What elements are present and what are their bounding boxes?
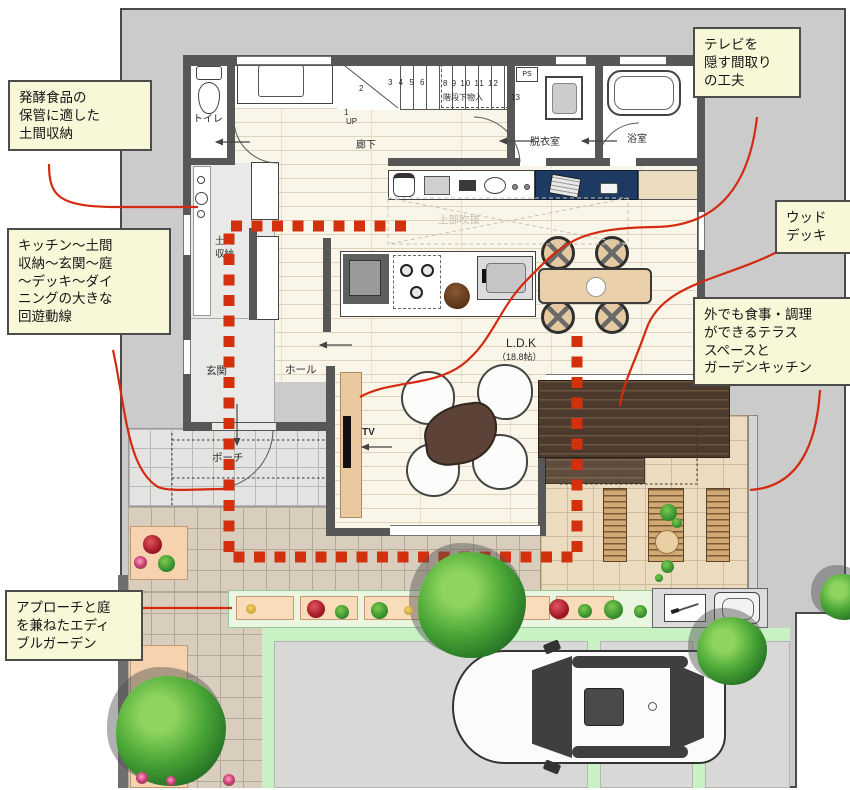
cutting-board bbox=[664, 594, 706, 622]
callout-tv-line: 隠す間取り bbox=[704, 54, 790, 72]
pink-flower bbox=[223, 774, 235, 786]
green-shrub bbox=[335, 605, 349, 619]
callout-garden: アプローチと庭 を兼ねたエディ ブルガーデン bbox=[5, 590, 143, 661]
small-appliance-icon bbox=[459, 180, 476, 191]
deck-step bbox=[545, 458, 645, 484]
callout-terrace-line: スペースと bbox=[704, 342, 844, 360]
terrace-bench bbox=[603, 488, 627, 562]
wall-corridor-south bbox=[388, 158, 705, 166]
label-doma-1: 土間 bbox=[215, 233, 234, 247]
label-hall: ホール bbox=[285, 362, 317, 377]
car bbox=[452, 646, 726, 768]
dining-table bbox=[538, 268, 652, 304]
wood-deck bbox=[538, 380, 730, 458]
callout-tv-line: テレビを bbox=[704, 36, 790, 54]
label-corridor: 廊下 bbox=[356, 136, 376, 151]
callout-garden-line: アプローチと庭 bbox=[16, 599, 132, 617]
label-stair-2: 2 bbox=[359, 84, 363, 93]
faucet-dot bbox=[512, 184, 518, 190]
callout-storage-line: 土間収納 bbox=[19, 125, 141, 143]
porch-tiles bbox=[128, 428, 330, 507]
label-toilet: トイレ bbox=[193, 110, 223, 125]
wall-hall-east bbox=[323, 238, 331, 332]
burner-icon bbox=[421, 264, 434, 277]
potted-herb bbox=[661, 560, 674, 573]
callout-circulation-line: 〜デッキ〜ダイ bbox=[18, 273, 160, 291]
preserve-jar bbox=[197, 176, 205, 184]
range-inner bbox=[349, 260, 381, 296]
grass-strip bbox=[262, 641, 274, 788]
wall-bath-west bbox=[595, 60, 603, 165]
red-shrub bbox=[549, 599, 569, 619]
callout-storage-line: 発酵食品の bbox=[19, 89, 141, 107]
island-cooktop bbox=[393, 255, 441, 309]
garden-tree-large bbox=[418, 552, 526, 658]
cabinet-door bbox=[258, 65, 304, 97]
red-shrub bbox=[143, 535, 162, 554]
terrace-bench bbox=[706, 488, 730, 562]
bathtub-inner bbox=[614, 76, 674, 110]
site-notch-white bbox=[795, 612, 846, 788]
washing-machine bbox=[545, 76, 583, 120]
callout-deck-line: デッキ bbox=[786, 227, 844, 245]
planter-box bbox=[236, 596, 294, 620]
burner-icon bbox=[410, 286, 423, 299]
burner-icon bbox=[400, 264, 413, 277]
pink-flower bbox=[136, 772, 148, 784]
window bbox=[620, 56, 666, 65]
green-shrub bbox=[158, 555, 175, 572]
label-dressing: 脱衣室 bbox=[530, 133, 560, 148]
label-doma-2: 収納 bbox=[215, 246, 234, 260]
planter-box-left bbox=[130, 526, 188, 580]
red-shrub bbox=[307, 600, 325, 618]
toaster-icon bbox=[424, 176, 450, 195]
remote-icon bbox=[600, 183, 618, 194]
preserve-jar bbox=[197, 210, 205, 218]
callout-terrace: 外でも食事・調理 ができるテラス スペースと ガーデンキッチン bbox=[693, 297, 850, 386]
window bbox=[556, 56, 586, 65]
door-gap bbox=[610, 158, 636, 166]
window bbox=[237, 56, 331, 65]
island-sink bbox=[477, 256, 533, 300]
flower bbox=[246, 604, 256, 614]
wall-toilet-bottom bbox=[191, 158, 235, 165]
terrace-plate bbox=[655, 530, 679, 554]
car-rear-window bbox=[670, 662, 704, 752]
car-emblem bbox=[648, 702, 657, 711]
counter-sink-oval bbox=[484, 177, 506, 194]
label-understairs: 階段下物入 bbox=[443, 92, 483, 103]
entrance-door-gap bbox=[212, 422, 276, 431]
label-stair-13: 13 bbox=[511, 93, 520, 102]
callout-terrace-line: ガーデンキッチン bbox=[704, 359, 844, 377]
callout-deck: ウッド デッキ bbox=[775, 200, 850, 254]
label-tv: TV bbox=[362, 427, 375, 438]
green-shrub bbox=[371, 602, 388, 619]
toilet-tank bbox=[196, 66, 222, 80]
flower bbox=[404, 606, 413, 615]
label-stair-1: 1 bbox=[344, 108, 348, 117]
callout-circulation-line: キッチン〜土間 bbox=[18, 237, 160, 255]
window bbox=[698, 212, 705, 250]
dining-chair bbox=[541, 236, 575, 270]
wall-living-west bbox=[326, 366, 335, 530]
label-stair-row1: 3 4 5 6 bbox=[388, 78, 426, 87]
label-up: UP bbox=[346, 117, 357, 126]
callout-circulation: キッチン〜土間 収納〜玄関〜庭 〜デッキ〜ダイ ニングの大きな 回遊動線 bbox=[7, 228, 171, 335]
living-south-window bbox=[390, 525, 540, 536]
bathtub bbox=[607, 70, 681, 116]
window bbox=[183, 340, 191, 374]
green-shrub bbox=[578, 604, 592, 618]
island-range bbox=[343, 254, 389, 304]
potted-herb bbox=[672, 518, 682, 528]
potted-herb bbox=[655, 574, 663, 582]
island-faucet bbox=[482, 269, 486, 283]
label-void: 上部吹抜 bbox=[438, 212, 480, 227]
faucet-dot bbox=[524, 184, 530, 190]
callout-terrace-line: 外でも食事・調理 bbox=[704, 306, 844, 324]
driveway-tree bbox=[697, 617, 767, 685]
window bbox=[183, 215, 191, 255]
dining-chair bbox=[595, 236, 629, 270]
callout-garden-line: ブルガーデン bbox=[16, 635, 132, 653]
pink-flower bbox=[166, 776, 176, 786]
door-gap bbox=[520, 158, 546, 166]
callout-terrace-line: ができるテラス bbox=[704, 324, 844, 342]
island-sink-basin bbox=[486, 263, 526, 293]
label-ldk: L.D.K bbox=[506, 336, 536, 350]
car-windshield bbox=[532, 656, 572, 758]
doma-shelf bbox=[193, 166, 211, 316]
book-icon bbox=[548, 174, 581, 199]
wall-doma-east bbox=[249, 228, 257, 320]
callout-circulation-line: 回遊動線 bbox=[18, 308, 160, 326]
label-ldk-size: （18.8帖） bbox=[497, 350, 542, 363]
pink-shrub bbox=[134, 556, 147, 569]
table-center-plate bbox=[586, 277, 606, 297]
green-shrub bbox=[604, 600, 623, 619]
label-bath: 浴室 bbox=[627, 130, 647, 145]
callout-deck-line: ウッド bbox=[786, 209, 844, 227]
tv-screen bbox=[343, 416, 351, 468]
washer-drum bbox=[552, 83, 577, 114]
callout-garden-line: を兼ねたエディ bbox=[16, 617, 132, 635]
pipe-space: PS bbox=[516, 67, 538, 82]
label-stair-row2: 8 9 10 11 12 bbox=[443, 79, 499, 88]
callout-tv-line: の工夫 bbox=[704, 72, 790, 90]
label-porch: ポーチ bbox=[212, 450, 244, 465]
study-counter-navy bbox=[535, 170, 638, 200]
front-yard-tree bbox=[116, 676, 226, 786]
dining-chair bbox=[595, 300, 629, 334]
dining-chair bbox=[541, 300, 575, 334]
preserve-jar bbox=[195, 192, 208, 205]
knife-handle-icon bbox=[671, 608, 680, 614]
green-shrub bbox=[634, 605, 647, 618]
callout-circulation-line: ニングの大きな bbox=[18, 290, 160, 308]
callout-storage: 発酵食品の 保管に適した 土間収納 bbox=[8, 80, 152, 151]
closet bbox=[251, 162, 279, 220]
callout-storage-line: 保管に適した bbox=[19, 107, 141, 125]
callout-circulation-line: 収納〜玄関〜庭 bbox=[18, 255, 160, 273]
label-entrance: 玄関 bbox=[206, 363, 227, 378]
kettle-icon bbox=[393, 173, 415, 197]
callout-tv: テレビを 隠す間取り の工夫 bbox=[693, 27, 801, 98]
floorplan-stage: PS bbox=[0, 0, 850, 790]
car-sunroof bbox=[584, 688, 624, 726]
wall-toilet-right bbox=[227, 60, 235, 165]
side-cabinet bbox=[638, 170, 700, 200]
wall-dressing-west bbox=[507, 60, 515, 158]
